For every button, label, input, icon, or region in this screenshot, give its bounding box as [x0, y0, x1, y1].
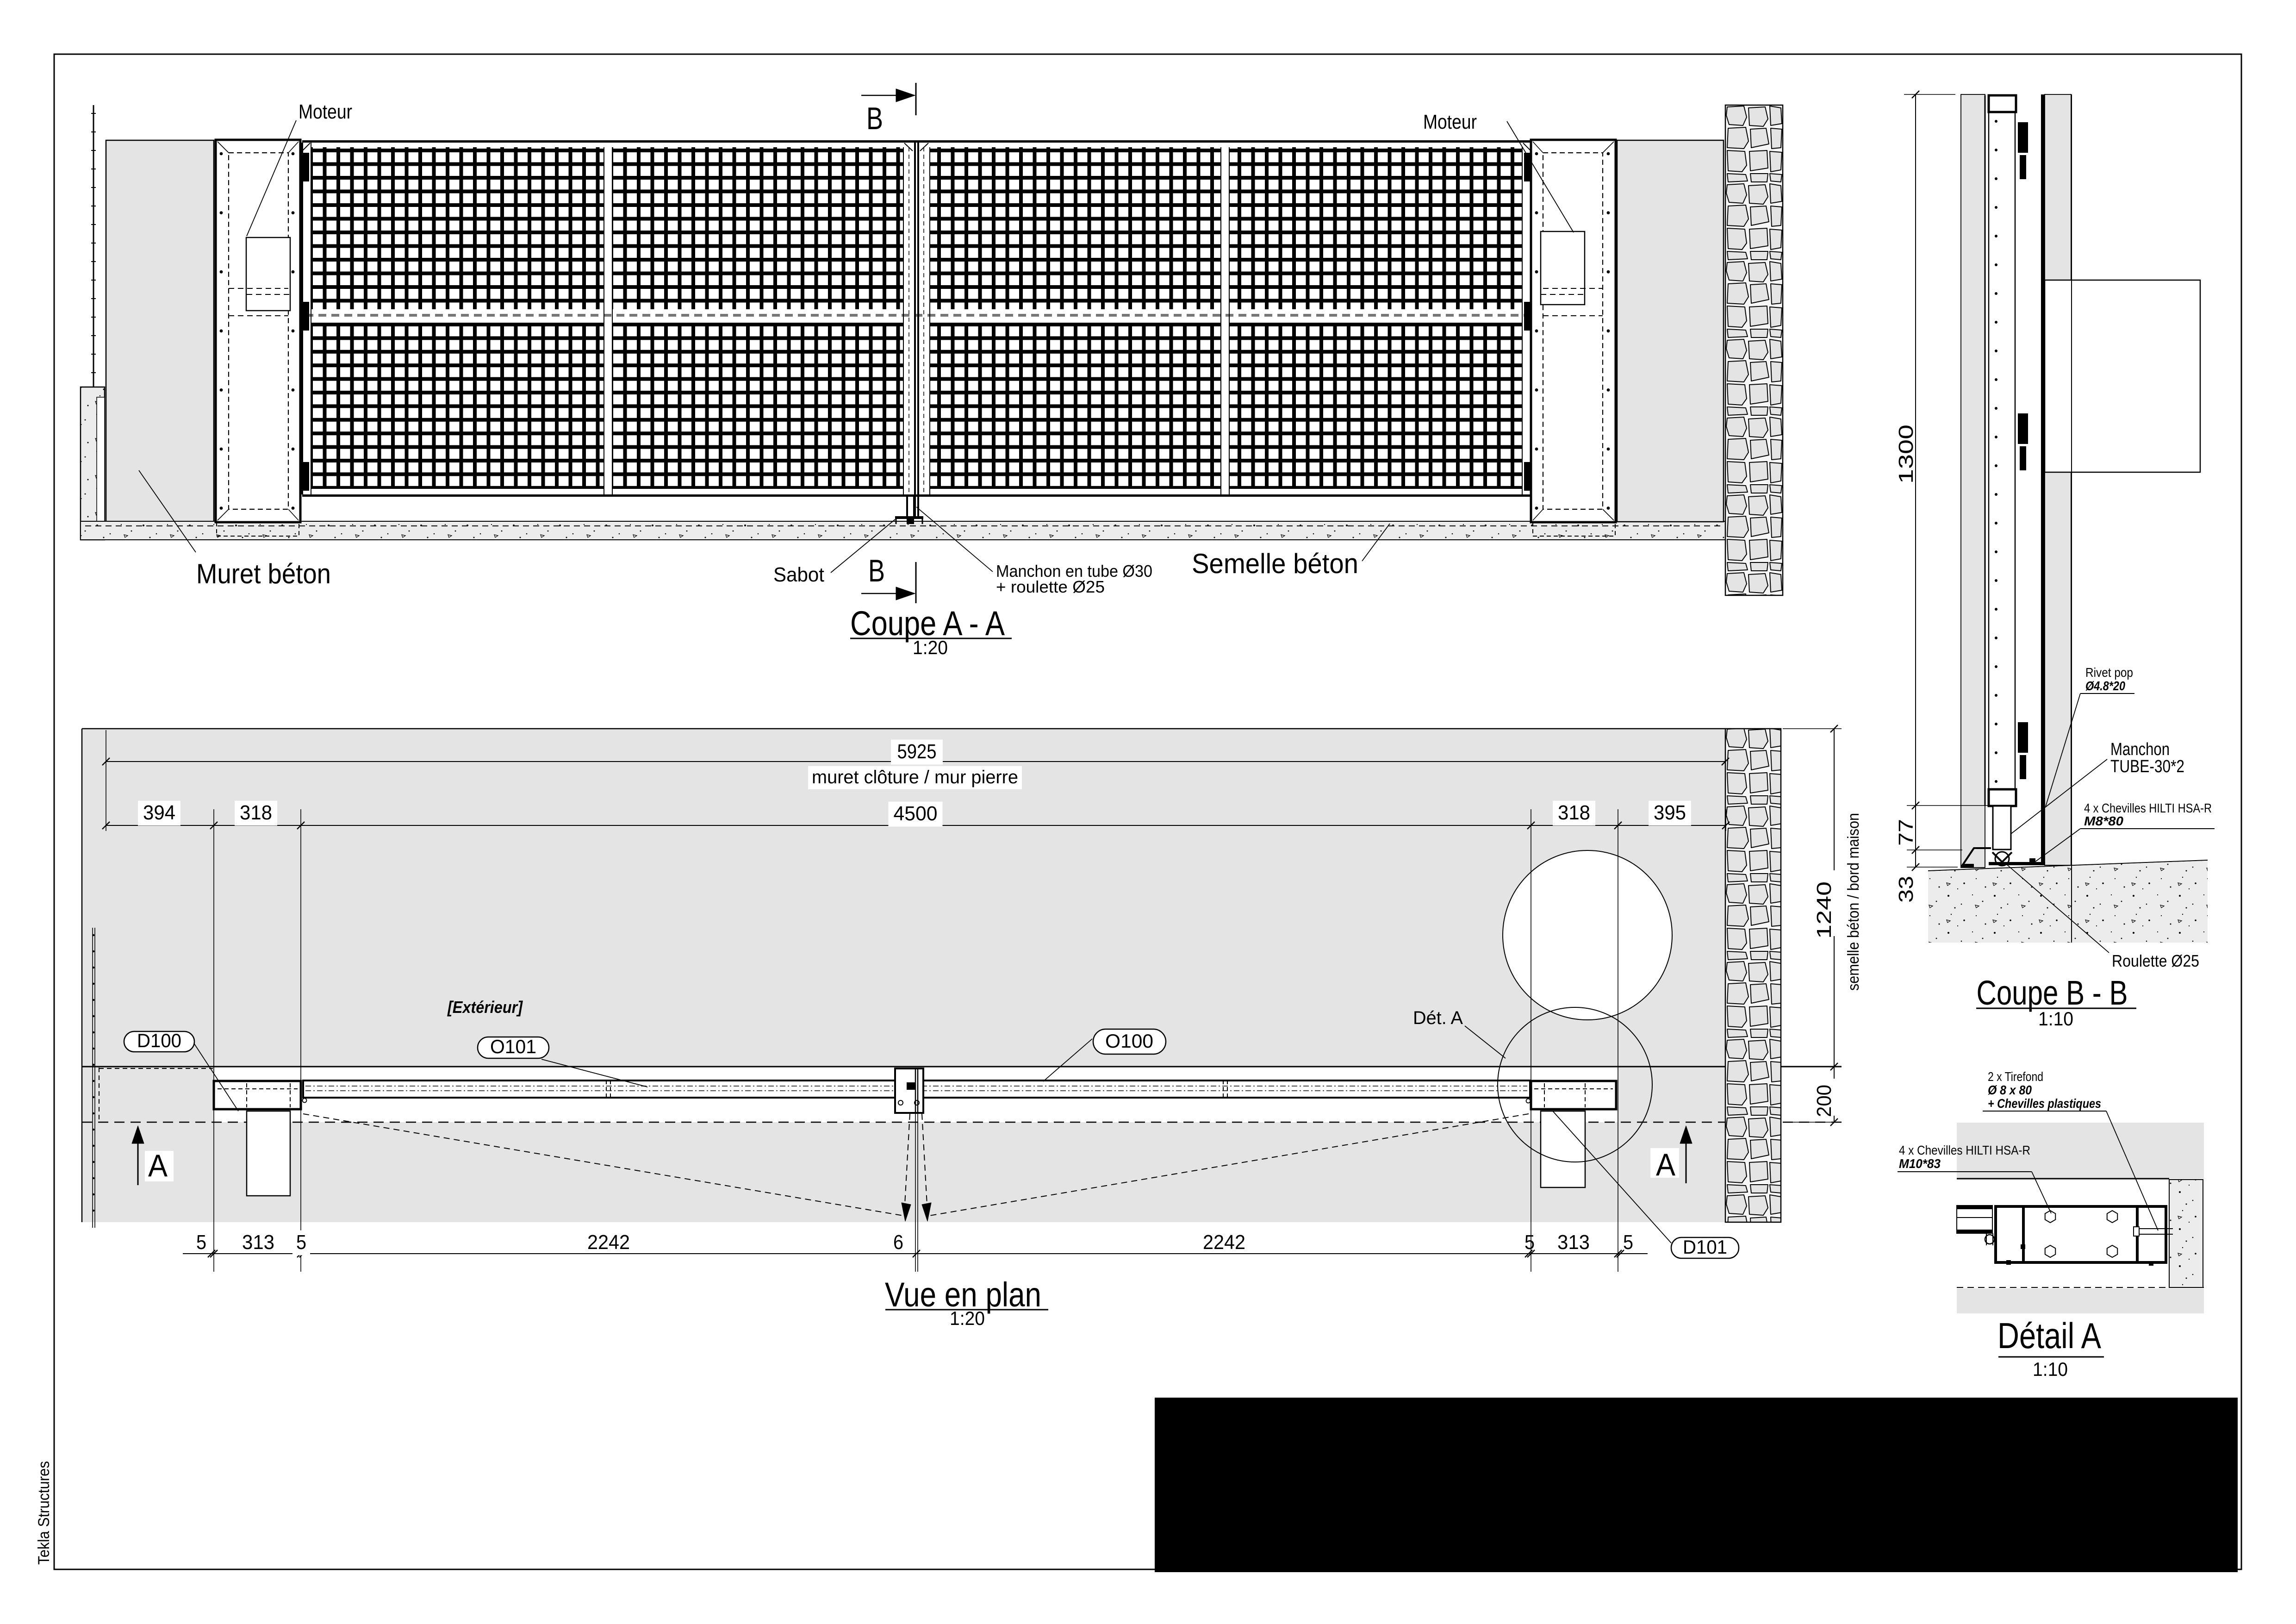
svg-text:313: 313: [242, 1231, 274, 1254]
svg-text:Muret béton: Muret béton: [196, 558, 331, 589]
svg-text:1240: 1240: [1813, 881, 1836, 939]
svg-text:5: 5: [196, 1231, 206, 1254]
svg-text:semelle béton / bord maison: semelle béton / bord maison: [1845, 813, 1862, 991]
svg-text:395: 395: [1654, 801, 1686, 824]
svg-text:Dét. A: Dét. A: [1413, 1008, 1463, 1028]
svg-text:+ Chevilles plastiques: + Chevilles plastiques: [1988, 1096, 2101, 1111]
svg-text:M10*83: M10*83: [1899, 1156, 1941, 1171]
svg-text:1:10: 1:10: [2033, 1358, 2068, 1380]
svg-text:B: B: [866, 101, 883, 136]
svg-text:5: 5: [1524, 1231, 1535, 1254]
svg-text:2 x Tirefond: 2 x Tirefond: [1988, 1069, 2043, 1084]
svg-text:Manchon: Manchon: [2110, 740, 2170, 759]
svg-text:Tekla Structures: Tekla Structures: [35, 1461, 53, 1565]
svg-text:5: 5: [296, 1231, 306, 1254]
svg-text:5925: 5925: [897, 740, 937, 763]
svg-text:Roulette Ø25: Roulette Ø25: [2112, 951, 2199, 970]
svg-text:5: 5: [1623, 1231, 1633, 1254]
svg-text:Ø4.8*20: Ø4.8*20: [2085, 679, 2125, 693]
svg-text:Sabot: Sabot: [773, 563, 824, 586]
svg-text:394: 394: [143, 801, 175, 824]
svg-text:4500: 4500: [894, 802, 938, 825]
svg-text:2242: 2242: [1203, 1231, 1245, 1254]
svg-text:200: 200: [1813, 1085, 1836, 1117]
svg-text:Coupe B - B: Coupe B - B: [1977, 974, 2128, 1012]
svg-text:1:20: 1:20: [950, 1307, 985, 1329]
svg-text:[Extérieur]: [Extérieur]: [447, 998, 523, 1017]
svg-text:Ø 8 x 80: Ø 8 x 80: [1988, 1083, 2032, 1097]
svg-text:D101: D101: [1683, 1236, 1727, 1258]
svg-text:Rivet pop: Rivet pop: [2085, 665, 2133, 680]
svg-text:2242: 2242: [587, 1231, 630, 1254]
svg-text:313: 313: [1557, 1231, 1590, 1254]
svg-text:77: 77: [1895, 819, 1917, 846]
svg-text:4 x Chevilles HILTI HSA-R: 4 x Chevilles HILTI HSA-R: [1899, 1143, 2030, 1157]
svg-text:Moteur: Moteur: [299, 100, 352, 123]
svg-text:Moteur: Moteur: [1423, 111, 1477, 133]
svg-text:B: B: [868, 553, 885, 588]
svg-text:M8*80: M8*80: [2084, 814, 2123, 828]
svg-text:1:20: 1:20: [913, 637, 948, 658]
svg-text:1300: 1300: [1895, 425, 1917, 484]
svg-text:TUBE-30*2: TUBE-30*2: [2110, 757, 2184, 776]
svg-text:33: 33: [1895, 876, 1917, 903]
svg-text:318: 318: [240, 801, 272, 824]
svg-text:D100: D100: [137, 1030, 181, 1051]
svg-text:Semelle béton: Semelle béton: [1192, 548, 1358, 579]
svg-text:muret clôture / mur pierre: muret clôture / mur pierre: [812, 767, 1018, 787]
svg-text:1:10: 1:10: [2038, 1008, 2073, 1030]
svg-text:O101: O101: [490, 1036, 536, 1057]
svg-text:O100: O100: [1105, 1030, 1153, 1052]
svg-text:+ roulette Ø25: + roulette Ø25: [996, 577, 1105, 596]
svg-text:4 x Chevilles HILTI HSA-R: 4 x Chevilles HILTI HSA-R: [2084, 801, 2212, 815]
svg-text:318: 318: [1558, 801, 1590, 824]
svg-text:A: A: [148, 1148, 168, 1183]
svg-text:Détail A: Détail A: [1997, 1315, 2101, 1356]
svg-text:6: 6: [893, 1231, 903, 1254]
svg-text:A: A: [1656, 1147, 1676, 1182]
